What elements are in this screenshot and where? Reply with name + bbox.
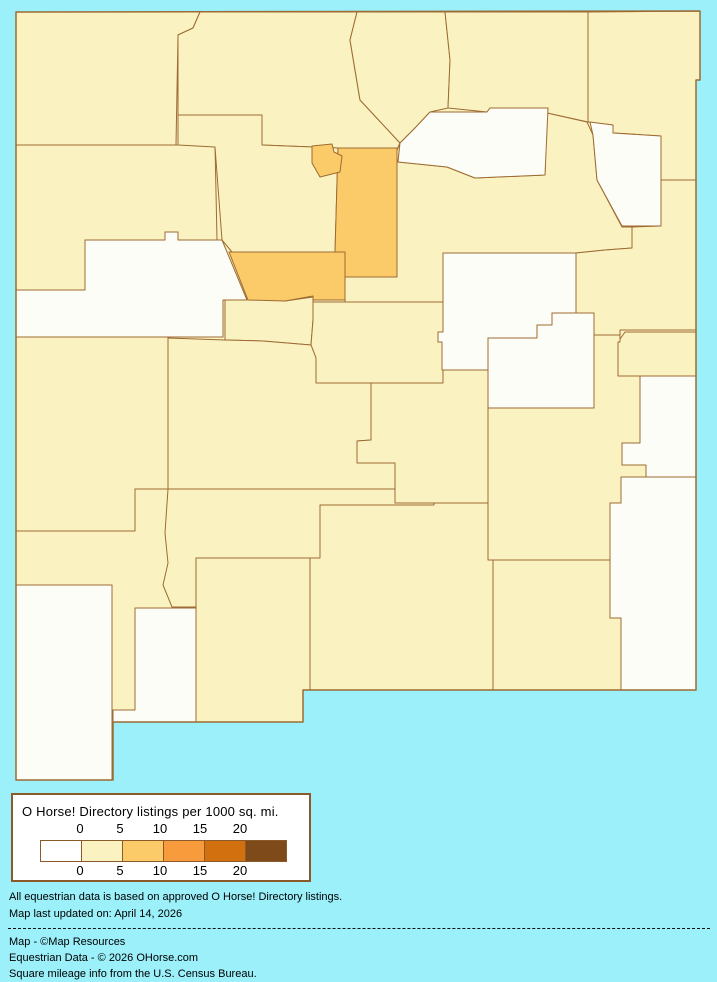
legend-swatch-5 — [246, 841, 286, 861]
county-san-juan[interactable]: San Juan — [16, 12, 200, 145]
credit-map-resources: Map - ©Map Resources — [9, 934, 257, 950]
legend-ticks-bottom-label-15: 15 — [193, 863, 207, 878]
legend-ticks-bottom-label-20: 20 — [233, 863, 247, 878]
new-mexico-county-map: San JuanRio ArribaTaosColfaxUnionMcKinle… — [0, 0, 717, 792]
legend-ticks-bottom-label-5: 5 — [116, 863, 123, 878]
county-otero[interactable]: Otero — [310, 503, 493, 690]
legend-ticks-bottom-label-0: 0 — [76, 863, 83, 878]
legend-ticks-top-label-5: 5 — [116, 821, 123, 836]
note-data-source: All equestrian data is based on approved… — [9, 889, 342, 906]
legend-ticks-top-label-20: 20 — [233, 821, 247, 836]
county-bernalillo[interactable]: Bernalillo — [229, 252, 345, 301]
legend-ticks-top-label-0: 0 — [76, 821, 83, 836]
county-lea[interactable]: Lea — [610, 477, 696, 690]
county-eddy[interactable]: Eddy — [493, 560, 621, 690]
legend-swatch-4 — [205, 841, 246, 861]
county-torrance[interactable]: Torrance — [311, 302, 443, 383]
legend-swatch-3 — [164, 841, 205, 861]
legend-ticks-top-label-10: 10 — [153, 821, 167, 836]
legend-swatch-2 — [123, 841, 164, 861]
legend-ticks-bottom: 05101520 — [13, 863, 309, 878]
map-notes: All equestrian data is based on approved… — [9, 889, 342, 923]
new-mexico-map-stage: San JuanRio ArribaTaosColfaxUnionMcKinle… — [0, 0, 717, 792]
county-colfax[interactable]: Colfax — [445, 12, 588, 122]
note-last-updated: Map last updated on: April 14, 2026 — [9, 906, 342, 923]
legend-swatch-strip — [40, 840, 287, 862]
dashed-divider — [8, 928, 710, 929]
credit-equestrian-data: Equestrian Data - © 2026 OHorse.com — [9, 950, 257, 966]
legend-ticks-top-label-15: 15 — [193, 821, 207, 836]
legend-ticks-bottom-label-10: 10 — [153, 863, 167, 878]
legend-swatch-1 — [82, 841, 123, 861]
county-hidalgo[interactable]: Hidalgo — [16, 585, 112, 780]
legend-swatch-0 — [41, 841, 82, 861]
map-credits: Map - ©Map Resources Equestrian Data - ©… — [9, 934, 257, 982]
legend-ticks-top: 05101520 — [13, 821, 309, 836]
legend-title: O Horse! Directory listings per 1000 sq.… — [22, 804, 279, 819]
county-curry[interactable]: Curry — [618, 332, 696, 376]
county-dona-ana[interactable]: Doña Ana — [196, 558, 310, 722]
credit-census-bureau: Square mileage info from the U.S. Census… — [9, 966, 257, 982]
legend-box: O Horse! Directory listings per 1000 sq.… — [11, 793, 311, 882]
